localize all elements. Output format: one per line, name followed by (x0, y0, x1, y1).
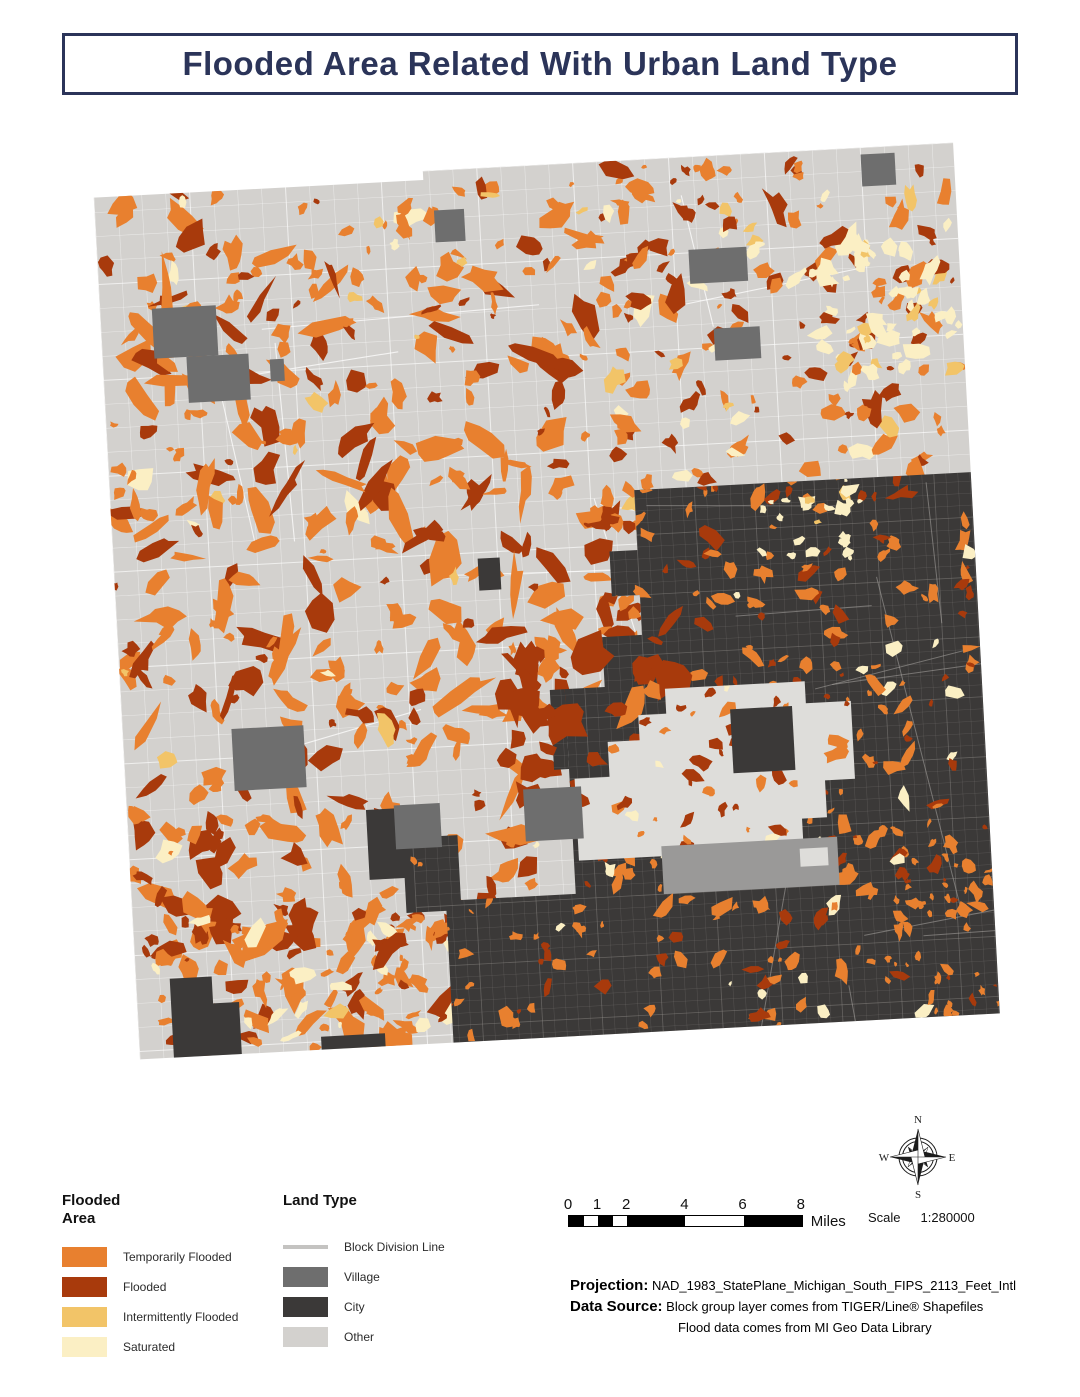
compass-w-label: W (879, 1152, 890, 1164)
scale-bar-segment (744, 1216, 802, 1226)
scale-note-value: 1:280000 (921, 1210, 975, 1225)
intermittently-flooded-swatch (62, 1307, 107, 1327)
other-swatch (283, 1327, 328, 1347)
map-poster: Flooded Area Related With Urban Land Typ… (0, 0, 1080, 1397)
legend-item-temporarily-flooded: Temporarily Flooded (62, 1242, 272, 1272)
legend-item-city: City (283, 1292, 513, 1322)
city-swatch (283, 1297, 328, 1317)
legend-item-flooded: Flooded (62, 1272, 272, 1302)
scale-bar-segment (569, 1216, 584, 1226)
legend-item-label: Other (344, 1330, 374, 1344)
data-source-line-2: Flood data comes from MI Geo Data Librar… (678, 1318, 1040, 1338)
scale-bar-segment (627, 1216, 685, 1226)
legend-item-label: Saturated (123, 1340, 175, 1354)
scale-bar-segment (598, 1216, 613, 1226)
compass-e-label: E (949, 1152, 956, 1164)
legend-item-label: Temporarily Flooded (123, 1250, 232, 1264)
legend-item-village: Village (283, 1262, 513, 1292)
legend-item-label: Village (344, 1270, 380, 1284)
compass-s-label: S (915, 1189, 921, 1201)
temporarily-flooded-swatch (62, 1247, 107, 1267)
data-source-value-2: Flood data comes from MI Geo Data Librar… (678, 1320, 932, 1335)
scale-note-label: Scale (868, 1210, 901, 1225)
compass-rose: N S W E (878, 1112, 958, 1202)
legend-item-label: City (344, 1300, 365, 1314)
block-division-line-swatch (283, 1245, 328, 1249)
scale-tick-label: 2 (622, 1196, 630, 1213)
flooded-swatch (62, 1277, 107, 1297)
village-swatch (283, 1267, 328, 1287)
scale-tick-label: 4 (680, 1196, 688, 1213)
legend-flooded-area: Flooded Area Temporarily Flooded Flooded… (62, 1192, 272, 1362)
data-source-label: Data Source: (570, 1298, 663, 1315)
scale-bar-strip (568, 1215, 803, 1227)
data-source-line: Data Source: Block group layer comes fro… (570, 1297, 1040, 1317)
scale-note: Scale1:280000 (868, 1210, 975, 1225)
scale-bar: 012468 Miles (568, 1196, 888, 1236)
compass-n-label: N (914, 1114, 922, 1126)
legend-item-saturated: Saturated (62, 1332, 272, 1362)
scale-tick-label: 0 (564, 1196, 572, 1213)
scale-tick-label: 6 (738, 1196, 746, 1213)
legend-land-title: Land Type (283, 1192, 513, 1210)
legend-item-other: Other (283, 1322, 513, 1352)
legend-item-label: Block Division Line (344, 1240, 445, 1254)
scale-bar-unit: Miles (811, 1213, 846, 1230)
legend-item-block-division-line: Block Division Line (283, 1232, 513, 1262)
projection-value: NAD_1983_StatePlane_Michigan_South_FIPS_… (652, 1278, 1016, 1293)
data-source-value-1: Block group layer comes from TIGER/Line®… (666, 1299, 983, 1314)
legend-item-intermittently-flooded: Intermittently Flooded (62, 1302, 272, 1332)
legend-item-label: Flooded (123, 1280, 166, 1294)
compass-cardinal-points (890, 1129, 946, 1185)
legend-land-type: Land Type Block Division Line Village Ci… (283, 1192, 513, 1352)
scale-tick-label: 8 (797, 1196, 805, 1213)
projection-line: Projection: NAD_1983_StatePlane_Michigan… (570, 1276, 1040, 1296)
scale-tick-label: 1 (593, 1196, 601, 1213)
projection-label: Projection: (570, 1277, 648, 1294)
legend-flooded-title: Flooded Area (62, 1192, 142, 1228)
saturated-swatch (62, 1337, 107, 1357)
legend-item-label: Intermittently Flooded (123, 1310, 238, 1324)
map-credits: Projection: NAD_1983_StatePlane_Michigan… (570, 1276, 1040, 1339)
